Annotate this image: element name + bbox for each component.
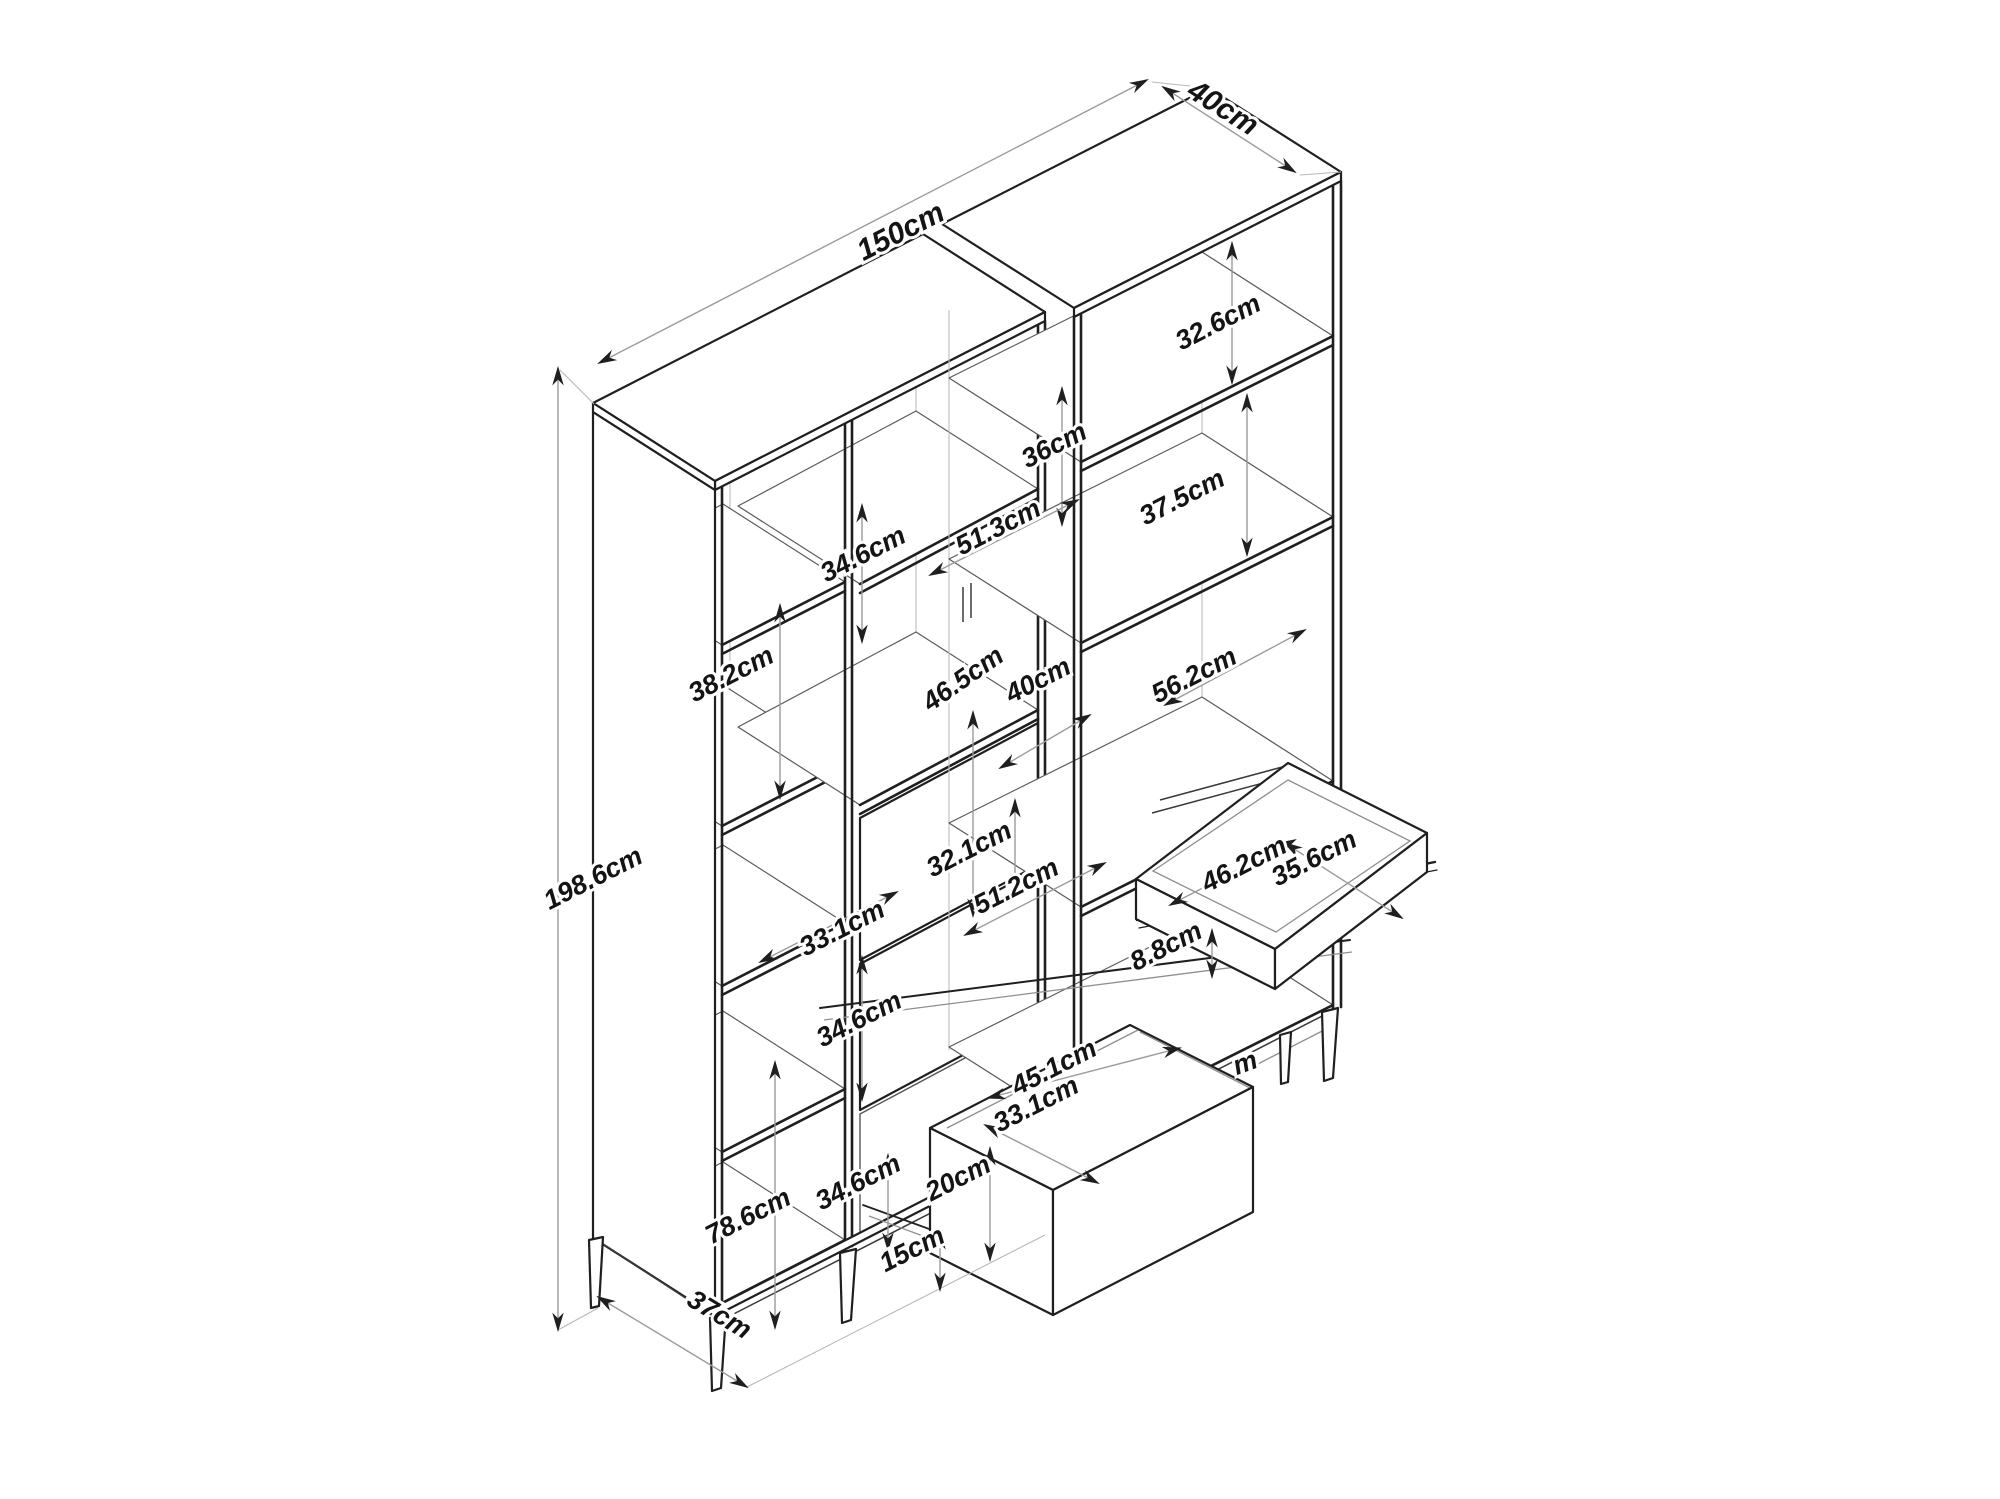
furniture-dimension-drawing: 150cm 40cm 32.6cm 37.5cm 34.6cm 51.3cm 3… [0,0,2000,1499]
technical-drawing-page: 150cm 40cm 32.6cm 37.5cm 34.6cm 51.3cm 3… [0,0,2000,1499]
